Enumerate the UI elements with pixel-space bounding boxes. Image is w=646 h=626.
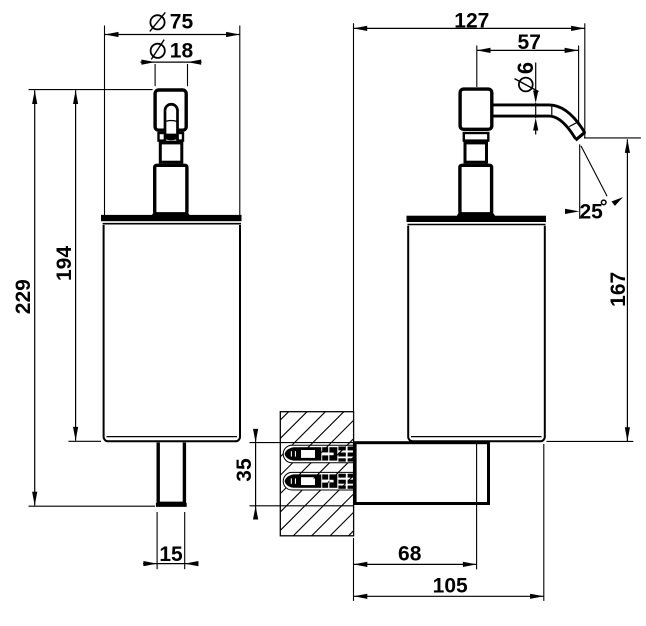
svg-text:25: 25 bbox=[580, 201, 604, 224]
svg-text:18: 18 bbox=[170, 40, 194, 63]
svg-text:6: 6 bbox=[513, 62, 538, 74]
svg-text:194: 194 bbox=[53, 246, 76, 281]
svg-text:229: 229 bbox=[12, 279, 35, 314]
svg-text:15: 15 bbox=[159, 543, 183, 566]
svg-text:105: 105 bbox=[433, 575, 468, 598]
svg-text:75: 75 bbox=[170, 11, 194, 34]
svg-text:35: 35 bbox=[233, 458, 256, 482]
svg-text:68: 68 bbox=[398, 543, 422, 566]
svg-text:167: 167 bbox=[607, 272, 630, 307]
